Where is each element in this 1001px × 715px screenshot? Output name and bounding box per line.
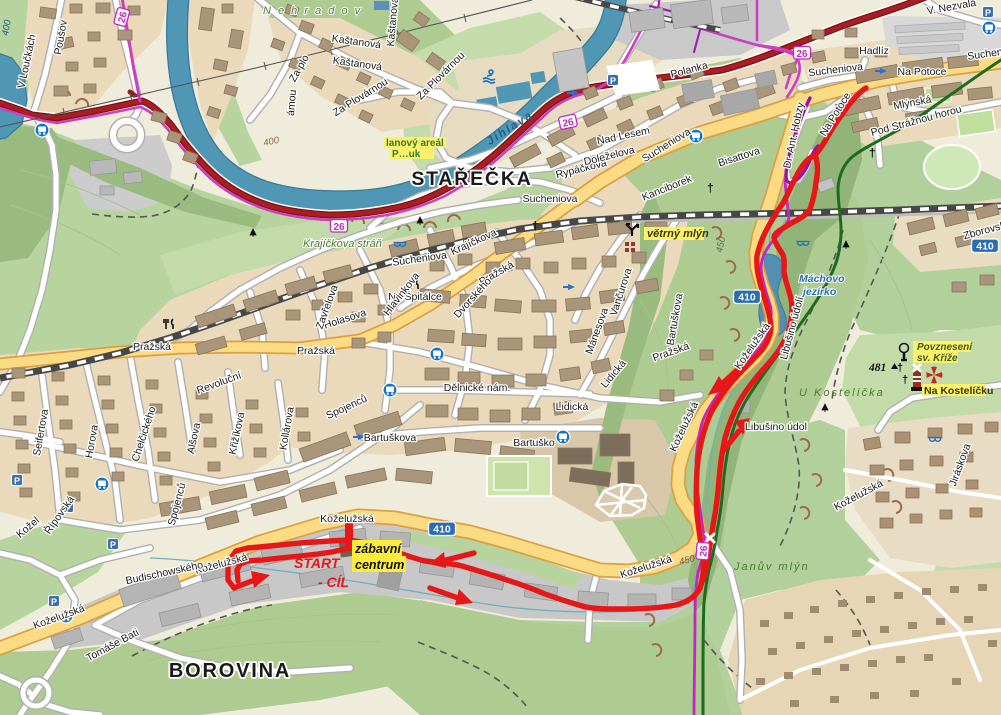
svg-text:Bartuškova: Bartuškova (364, 432, 417, 444)
svg-text:P…uk: P…uk (392, 149, 421, 160)
svg-text:410: 410 (976, 241, 994, 253)
svg-text:26: 26 (796, 49, 808, 60)
svg-text:Povznesení: Povznesení (917, 342, 973, 353)
svg-text:lanový areál: lanový areál (386, 138, 444, 149)
svg-text:†: † (707, 181, 714, 195)
svg-text:Na Kostelíčku: Na Kostelíčku (924, 385, 993, 397)
svg-text:†: † (902, 374, 908, 386)
svg-text:410: 410 (433, 524, 451, 536)
svg-text:Lidická: Lidická (556, 401, 589, 413)
svg-text:- CÍL: - CÍL (318, 574, 349, 590)
svg-text:Na Potoce: Na Potoce (897, 66, 946, 78)
svg-text:†: † (897, 362, 903, 374)
svg-text:Koželužská: Koželužská (320, 513, 374, 525)
svg-text:centrum: centrum (355, 558, 404, 572)
svg-text:†: † (869, 146, 876, 160)
svg-text:Hadlíz: Hadlíz (859, 45, 889, 57)
svg-text:26: 26 (333, 222, 345, 233)
svg-text:Bartuško: Bartuško (513, 437, 555, 449)
svg-text:410: 410 (738, 292, 756, 304)
svg-text:Krajíčkova stráň: Krajíčkova stráň (303, 238, 382, 250)
svg-text:zábavní: zábavní (354, 542, 402, 556)
svg-text:Libušino údol: Libušino údol (745, 421, 807, 433)
svg-text:BOROVINA: BOROVINA (169, 660, 291, 682)
svg-text:N e h r a d o v: N e h r a d o v (263, 5, 362, 17)
svg-text:Pražská: Pražská (133, 341, 171, 353)
svg-text:U Kostelíčka: U Kostelíčka (799, 387, 885, 399)
svg-text:481: 481 (868, 362, 886, 374)
svg-text:Dělnické nám.: Dělnické nám. (444, 382, 511, 394)
svg-text:Sucheniova: Sucheniova (523, 193, 578, 205)
svg-text:větrný mlýn: větrný mlýn (647, 228, 709, 240)
svg-text:Janův mlýn: Janův mlýn (733, 561, 810, 573)
svg-text:ámou: ámou (285, 89, 299, 116)
svg-text:START: START (294, 555, 341, 571)
svg-text:sv. Kříže: sv. Kříže (917, 353, 958, 364)
svg-text:Máchovo: Máchovo (799, 273, 845, 285)
svg-text:jezírko: jezírko (801, 286, 837, 298)
svg-text:Pražská: Pražská (297, 345, 335, 357)
svg-text:26: 26 (698, 545, 710, 557)
svg-text:†: † (532, 219, 539, 233)
svg-text:STAŘEČKA: STAŘEČKA (411, 166, 532, 190)
